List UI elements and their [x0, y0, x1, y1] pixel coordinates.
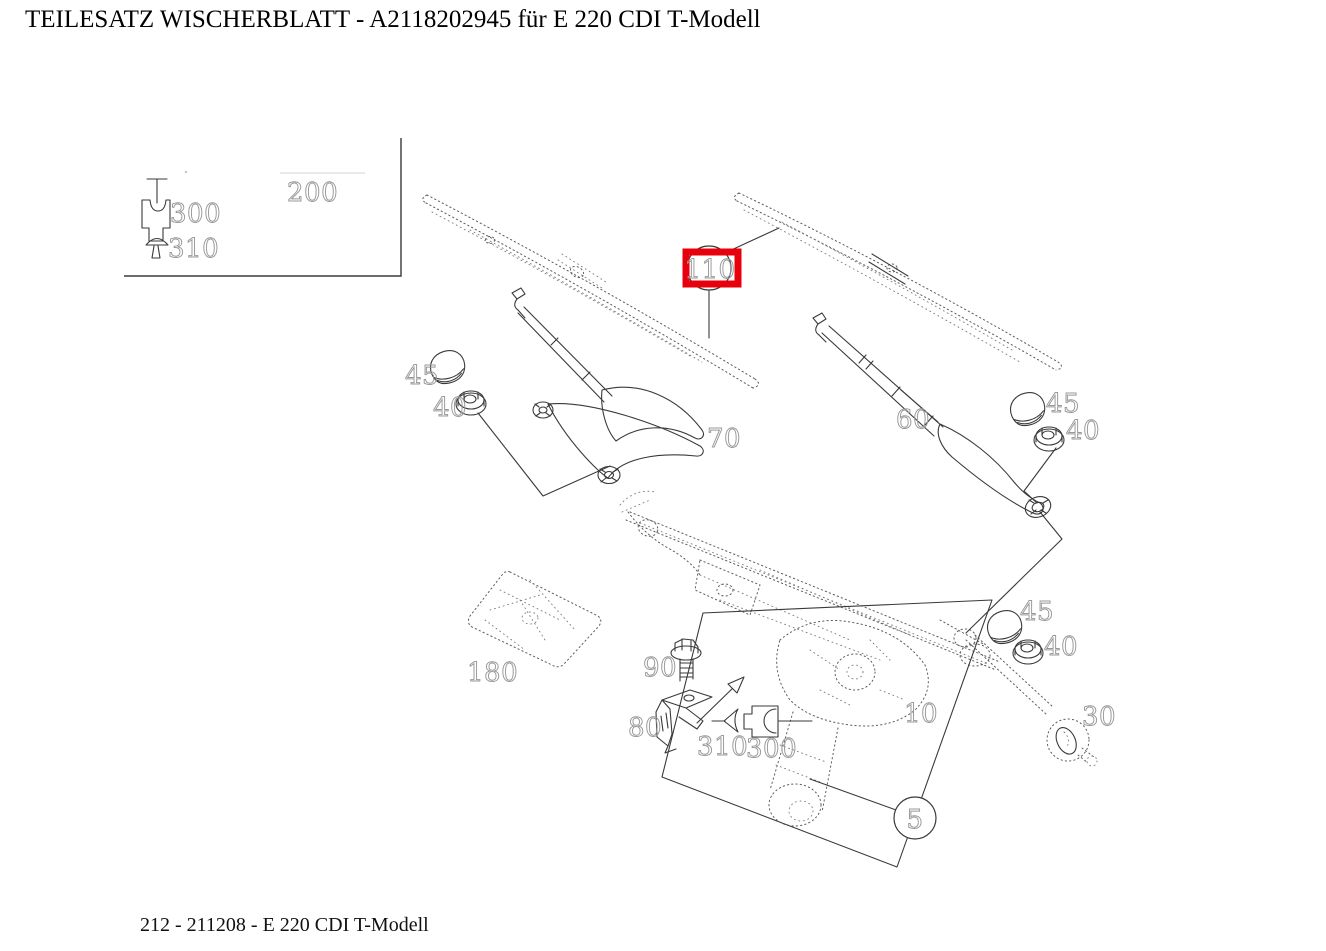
callout-40-left[interactable]: 40	[433, 393, 467, 423]
wiper-blade-left	[423, 195, 759, 388]
callout-310-main[interactable]: 310	[697, 732, 748, 762]
callout-60[interactable]: 60	[896, 405, 930, 435]
clip-300-icon	[142, 179, 170, 241]
callout-200[interactable]: 200	[287, 178, 338, 208]
legend-box: 300 310 200	[124, 138, 401, 276]
cap-45-right-top	[1007, 390, 1047, 429]
callout-5[interactable]: 5	[906, 805, 923, 835]
nut-40-right-bottom	[1013, 640, 1043, 664]
callout-30[interactable]: 30	[1082, 702, 1116, 732]
callout-45-left[interactable]: 45	[405, 361, 439, 391]
callout-40-right-top[interactable]: 40	[1066, 416, 1100, 446]
rivet-310-main	[712, 709, 738, 732]
callout-70[interactable]: 70	[707, 424, 741, 454]
pointer-40-right-top	[1024, 448, 1056, 503]
cover-180	[468, 571, 600, 666]
callout-180[interactable]: 180	[467, 658, 518, 688]
wiper-arm-left	[512, 288, 703, 484]
callout-45-right-top[interactable]: 45	[1046, 389, 1080, 419]
clip-300-main	[744, 706, 812, 737]
wiper-blade-right	[734, 193, 1061, 370]
callout-90[interactable]: 90	[643, 653, 677, 683]
callout-80[interactable]: 80	[628, 713, 662, 743]
callout-circle-5[interactable]: 5	[894, 797, 936, 839]
callout-40-right-bottom[interactable]: 40	[1044, 632, 1078, 662]
parts-diagram: TEILESATZ WISCHERBLATT - A2118202945 für…	[0, 0, 1326, 951]
wiper-linkage	[620, 491, 1053, 714]
callout-110[interactable]: 110	[684, 255, 735, 285]
footer-caption: 212 - 211208 - E 220 CDI T-Modell	[140, 914, 429, 936]
legend-dot	[185, 171, 187, 173]
callout-310-legend[interactable]: 310	[168, 234, 219, 264]
cap-45-right-bottom	[984, 608, 1024, 647]
callout-10[interactable]: 10	[904, 699, 938, 729]
callout-45-right-bottom[interactable]: 45	[1020, 597, 1054, 627]
callout-300-main[interactable]: 300	[746, 734, 797, 764]
callout-circle-110[interactable]: 110	[684, 246, 738, 290]
nut-40-right-top	[1034, 427, 1064, 451]
callout-300-legend[interactable]: 300	[170, 199, 221, 229]
page-title: TEILESATZ WISCHERBLATT - A2118202945 für…	[25, 6, 761, 33]
pointer-40-left	[478, 413, 610, 496]
legend-border	[124, 138, 401, 276]
wiper-arm-right	[813, 313, 1054, 521]
callout-labels: 45 40 70 60 45 40 180 90 80 310 300 10 4…	[405, 361, 1116, 764]
